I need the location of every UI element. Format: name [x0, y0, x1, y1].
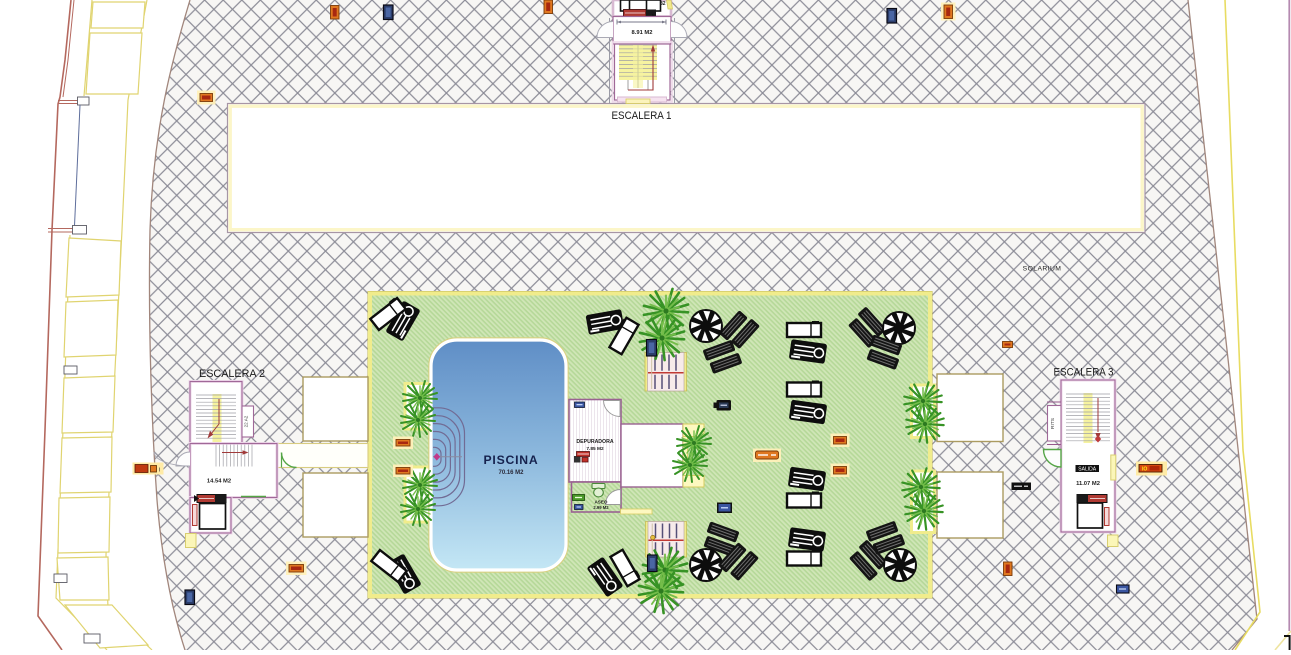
svg-text:ESCALERA 2: ESCALERA 2	[199, 368, 265, 380]
svg-text:SALIDA: SALIDA	[1078, 467, 1096, 473]
svg-text:PISCINA: PISCINA	[483, 453, 538, 467]
svg-text:RITS: RITS	[1050, 418, 1056, 429]
svg-text:70.16 M2: 70.16 M2	[498, 470, 524, 476]
svg-text:14.54 M2: 14.54 M2	[207, 479, 231, 485]
svg-text:22 A2: 22 A2	[244, 415, 249, 427]
svg-text:82: 82	[660, 1, 666, 7]
svg-text:8.91 M2: 8.91 M2	[632, 30, 653, 36]
svg-text:ASEO: ASEO	[594, 500, 607, 505]
svg-text:11.07 M2: 11.07 M2	[1076, 481, 1100, 487]
svg-text:ESCALERA 1: ESCALERA 1	[612, 110, 672, 122]
svg-text:DEPURADORA: DEPURADORA	[576, 439, 613, 445]
svg-text:IO: IO	[1142, 467, 1147, 473]
svg-text:2.99 M2: 2.99 M2	[593, 505, 609, 510]
svg-text:ESCALERA 3: ESCALERA 3	[1054, 367, 1114, 379]
svg-text:SOLARIUM: SOLARIUM	[1023, 266, 1062, 273]
